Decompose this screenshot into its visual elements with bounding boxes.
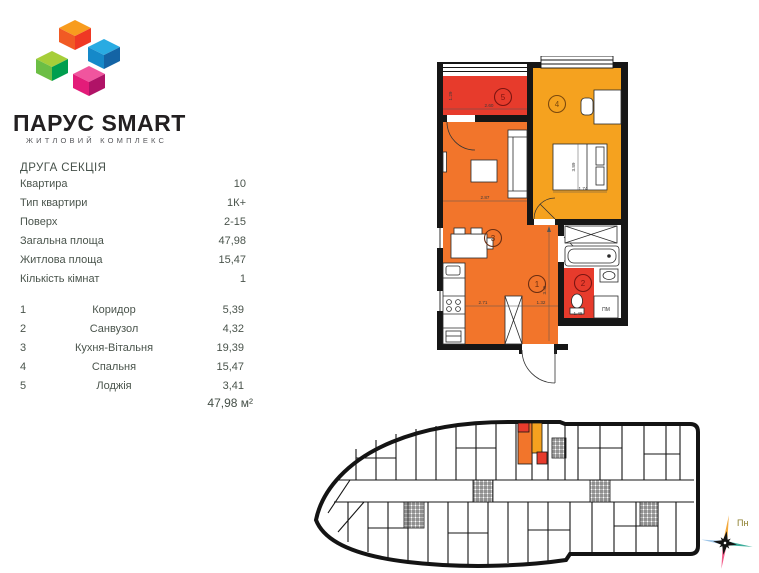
room-name: Кухня-Вітальня [36,342,192,354]
building-overview-plan [308,418,703,568]
room-number: 2 [20,323,36,335]
detail-row-room-count: Кількість кімнат 1 [20,273,246,285]
room-number: 5 [20,380,36,392]
room-row-corridor: 1 Коридор 5,39 [20,304,244,316]
detail-row-type: Тип квартири 1К+ [20,197,246,209]
chair [454,228,465,234]
room-number: 1 [20,304,36,316]
detail-label: Поверх [20,216,57,228]
bedroom-window [541,56,613,68]
entrance-door-opening [522,344,555,350]
dim-loggia-width: 2.60 [485,103,494,108]
detail-label: Кількість кімнат [20,273,99,285]
dim-bedroom-width: 1.74 [579,186,588,191]
entrance-door-arc [522,350,555,383]
toilet [572,294,583,308]
detail-value: 1 [240,273,246,285]
room-name: Санвузол [36,323,192,335]
building-outline [316,422,698,566]
loggia-glazing [443,64,527,76]
kitchen-sink [446,266,460,275]
bed-pillow [596,147,604,165]
magenta-cube [73,66,105,96]
dim-bedroom-length: 3.89 [571,162,576,171]
room-area: 4,32 [192,323,244,335]
plan-room-1: 1 [535,280,540,289]
room-name: Спальня [36,361,192,373]
stove-burner [456,300,461,305]
desk [594,90,621,124]
blue-cube [88,39,120,69]
door-jamb [554,344,557,354]
room-area: 15,47 [192,361,244,373]
chair [471,228,482,234]
orange-cube [59,20,91,50]
room-area: 5,39 [192,304,244,316]
logo-title: ПАРУС SMART [13,110,186,137]
apartment-floor-plan: 2.60 1.29 2.87 3.89 1.74 2.71 1.32 3.45 … [437,56,628,401]
dining-table [451,234,487,258]
plan-room-4: 4 [555,100,560,109]
detail-value: 47,98 [218,235,246,247]
detail-value: 15,47 [218,254,246,266]
compass-rose: Пн [700,505,756,571]
plan-room-2: 2 [581,279,586,288]
plan-room-3: 3 [491,234,496,243]
room-row-loggia: 5 Лоджія 3,41 [20,380,244,392]
total-area: 47,98 м² [20,396,253,410]
dim-kitchen-width: 2.71 [479,300,488,305]
bathtub-drain [608,255,611,258]
room-area: 19,39 [192,342,244,354]
stove-burner [447,300,452,305]
bedroom-door-opening [534,219,555,225]
tv-stand [443,152,447,172]
detail-row-total-area: Загальна площа 47,98 [20,235,246,247]
room-number: 3 [20,342,36,354]
room-number: 4 [20,361,36,373]
logo-cubes-icon [28,4,138,108]
bathroom-door-opening [558,236,564,262]
plan-room-5: 5 [501,93,506,102]
desk-chair [581,98,593,115]
apartment-card-page: ПАРУС SMART ЖИТЛОВИЙ КОМПЛЕКС ДРУГА СЕКЦ… [0,0,759,573]
detail-value: 2-15 [224,216,246,228]
detail-label: Житлова площа [20,254,102,266]
door-jamb [519,344,522,354]
stove-burner [447,307,452,312]
dim-bath-width: 1.48 [574,311,583,316]
room-area: 3,41 [192,380,244,392]
bed-pillow [596,167,604,185]
green-cube [36,51,68,81]
room-row-bedroom: 4 Спальня 15,47 [20,361,244,373]
room-name: Коридор [36,304,192,316]
dim-living-width: 2.87 [481,195,490,200]
logo-subtitle: ЖИТЛОВИЙ КОМПЛЕКС [26,136,167,145]
detail-row-apartment: Квартира 10 [20,178,246,190]
sofa [508,130,527,198]
stove-burner [456,307,461,312]
room-row-bathroom: 2 Санвузол 4,32 [20,323,244,335]
detail-label: Квартира [20,178,68,190]
detail-value: 10 [234,178,246,190]
loggia-door-opening [447,115,475,122]
fridge [446,331,461,342]
detail-row-living-area: Житлова площа 15,47 [20,254,246,266]
dim-loggia-depth: 1.29 [448,91,453,100]
detail-label: Загальна площа [20,235,104,247]
room-name: Лоджія [36,380,192,392]
north-label: Пн [737,518,748,528]
detail-row-floor: Поверх 2-15 [20,216,246,228]
section-title: ДРУГА СЕКЦІЯ [20,162,106,174]
coffee-table [471,160,497,182]
washing-machine-label: ПМ [602,307,610,313]
detail-value: 1К+ [227,197,246,209]
room-row-kitchen-living: 3 Кухня-Вітальня 19,39 [20,342,244,354]
detail-label: Тип квартири [20,197,87,209]
dim-corridor-width: 1.32 [537,300,546,305]
